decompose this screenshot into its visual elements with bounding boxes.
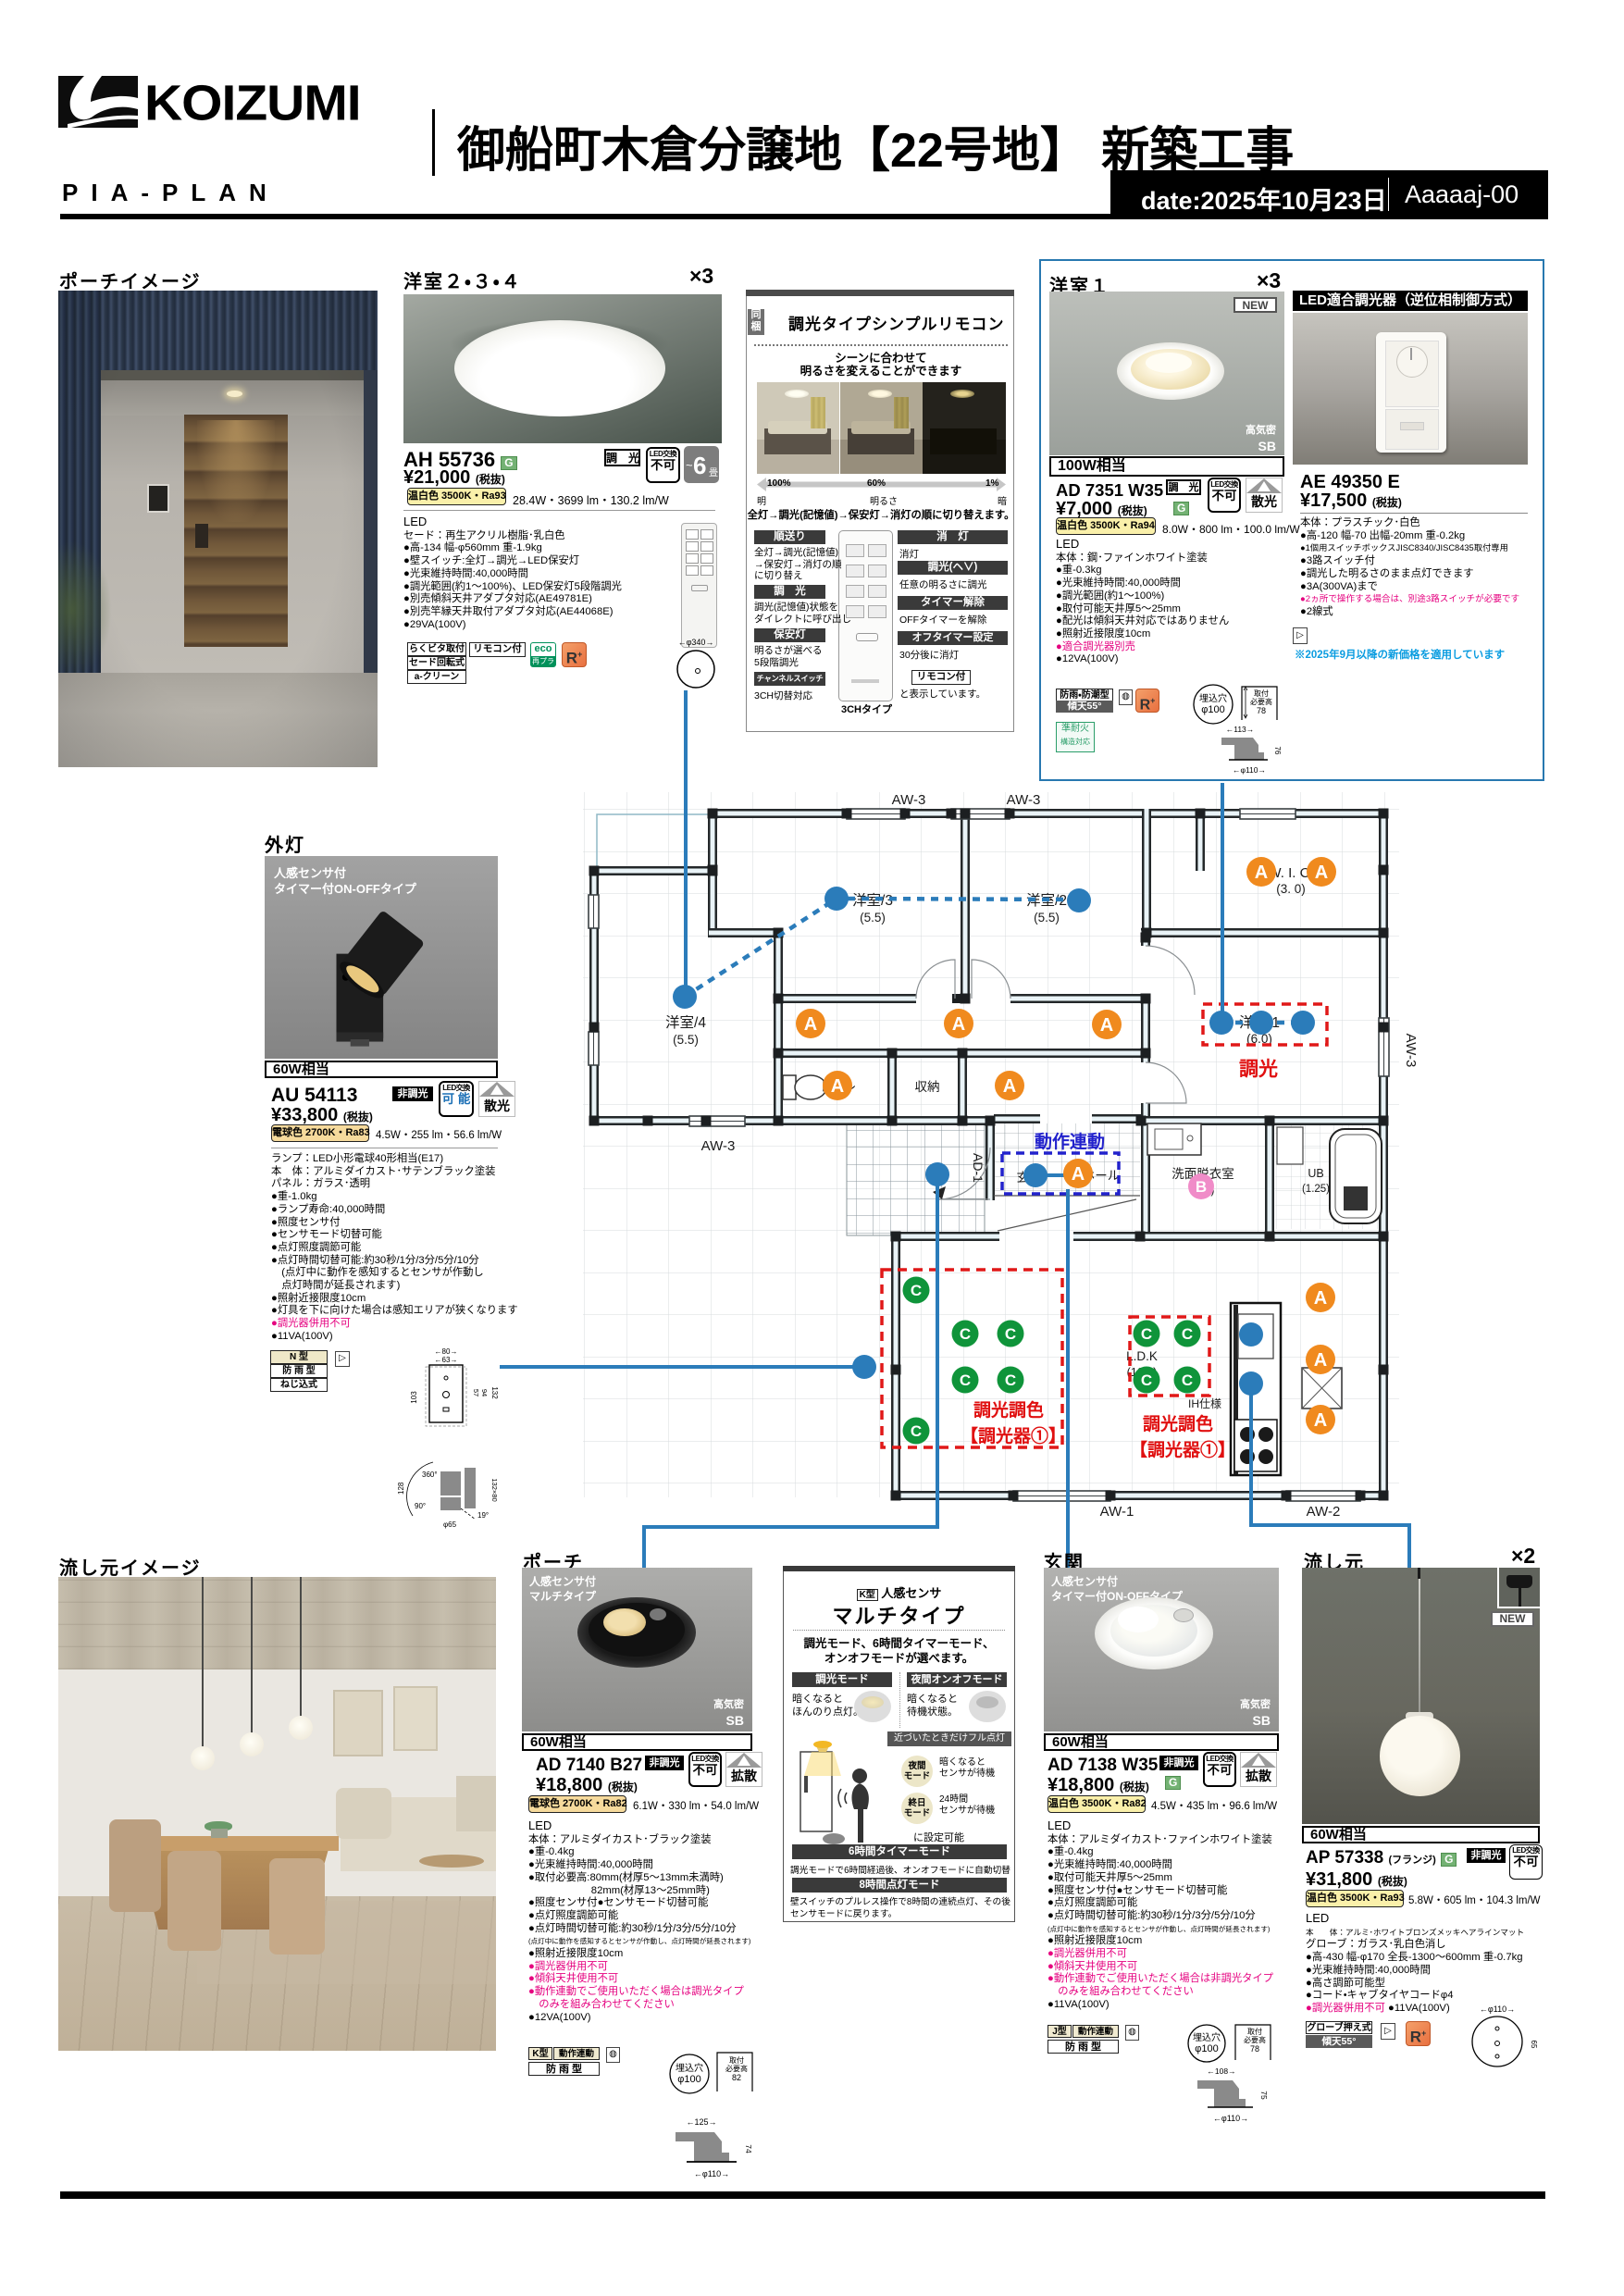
svg-text:C: C <box>911 1282 922 1299</box>
svg-text:C: C <box>911 1422 922 1440</box>
svg-text:収納: 収納 <box>915 1080 940 1094</box>
svg-text:AW-3: AW-3 <box>701 1138 736 1154</box>
svg-text:φ65: φ65 <box>443 1520 457 1529</box>
svg-text:←63→: ←63→ <box>435 1356 458 1364</box>
svg-text:必要高: 必要高 <box>725 2064 748 2073</box>
svg-text:←80→: ←80→ <box>435 1347 458 1356</box>
svg-text:B: B <box>1196 1178 1207 1196</box>
svg-text:【調光器①】: 【調光器①】 <box>1130 1439 1235 1460</box>
svg-text:洋室/3: 洋室/3 <box>852 892 893 909</box>
svg-text:132×80: 132×80 <box>490 1478 499 1501</box>
svg-text:φ100: φ100 <box>1195 2043 1219 2054</box>
svg-text:C: C <box>1182 1371 1193 1389</box>
svg-text:74: 74 <box>744 2144 753 2153</box>
svg-text:A: A <box>831 1076 844 1097</box>
svg-text:←φ110→: ←φ110→ <box>1213 2114 1248 2123</box>
svg-text:調光調色: 調光調色 <box>973 1399 1044 1421</box>
svg-text:取付: 取付 <box>729 2055 744 2065</box>
svg-text:132: 132 <box>490 1386 499 1399</box>
svg-text:A: A <box>1314 1288 1327 1309</box>
svg-text:AW-1: AW-1 <box>1100 1504 1134 1520</box>
svg-text:(5.5): (5.5) <box>1034 911 1060 925</box>
svg-text:C: C <box>1005 1371 1016 1389</box>
svg-text:C: C <box>1141 1371 1152 1389</box>
svg-text:IH仕様: IH仕様 <box>1188 1397 1221 1410</box>
svg-text:90°: 90° <box>415 1502 426 1510</box>
svg-text:(3. 0): (3. 0) <box>1276 882 1306 896</box>
svg-text:75: 75 <box>1259 2091 1269 2100</box>
svg-text:(5.5): (5.5) <box>673 1033 699 1047</box>
svg-text:C: C <box>960 1325 971 1343</box>
svg-text:A: A <box>1003 1076 1016 1097</box>
svg-text:A: A <box>1315 863 1328 883</box>
svg-text:(1.25): (1.25) <box>1302 1184 1330 1195</box>
svg-text:取付: 取付 <box>1247 2027 1262 2036</box>
svg-text:必要高: 必要高 <box>1244 2035 1266 2044</box>
svg-text:82: 82 <box>732 2073 741 2082</box>
svg-text:(5.5): (5.5) <box>860 911 886 925</box>
svg-text:C: C <box>1141 1325 1152 1343</box>
svg-text:←108→: ←108→ <box>1207 2066 1235 2076</box>
svg-text:C: C <box>1005 1325 1016 1343</box>
svg-text:A: A <box>1072 1164 1085 1185</box>
svg-text:65: 65 <box>1530 2041 1538 2049</box>
svg-text:←125→: ←125→ <box>686 2117 716 2127</box>
svg-text:103: 103 <box>410 1391 418 1404</box>
svg-text:調光調色: 調光調色 <box>1143 1413 1213 1434</box>
svg-text:AW-3: AW-3 <box>1403 1034 1419 1068</box>
svg-text:A: A <box>804 1014 817 1035</box>
svg-text:360°: 360° <box>422 1471 438 1479</box>
svg-text:埋込穴: 埋込穴 <box>676 2063 703 2074</box>
svg-text:【調光器①】: 【調光器①】 <box>961 1425 1066 1446</box>
svg-text:AW-3: AW-3 <box>1007 792 1041 808</box>
svg-text:57: 57 <box>472 1389 480 1396</box>
svg-text:埋込穴: 埋込穴 <box>1193 2032 1221 2043</box>
svg-text:94: 94 <box>480 1389 489 1396</box>
svg-text:洋室/4: 洋室/4 <box>665 1014 706 1031</box>
svg-text:AD-1: AD-1 <box>971 1153 986 1183</box>
svg-text:78: 78 <box>1250 2044 1259 2054</box>
svg-text:128: 128 <box>397 1482 405 1495</box>
svg-text:A: A <box>952 1014 965 1035</box>
svg-text:A: A <box>1314 1410 1327 1431</box>
svg-text:←φ110→: ←φ110→ <box>694 2169 729 2178</box>
svg-text:A: A <box>1255 863 1268 883</box>
svg-text:動作連動: 動作連動 <box>1035 1131 1105 1152</box>
svg-text:AW-2: AW-2 <box>1307 1504 1341 1520</box>
svg-text:←φ110→: ←φ110→ <box>1480 2004 1515 2014</box>
svg-text:C: C <box>1182 1325 1193 1343</box>
svg-text:A: A <box>1100 1015 1113 1036</box>
svg-text:UB: UB <box>1308 1167 1323 1180</box>
svg-text:A: A <box>1314 1350 1327 1371</box>
svg-text:調光: 調光 <box>1239 1059 1278 1080</box>
svg-text:φ100: φ100 <box>677 2074 701 2085</box>
svg-text:19°: 19° <box>477 1511 489 1520</box>
svg-text:AW-3: AW-3 <box>892 792 926 808</box>
svg-text:C: C <box>960 1371 971 1389</box>
